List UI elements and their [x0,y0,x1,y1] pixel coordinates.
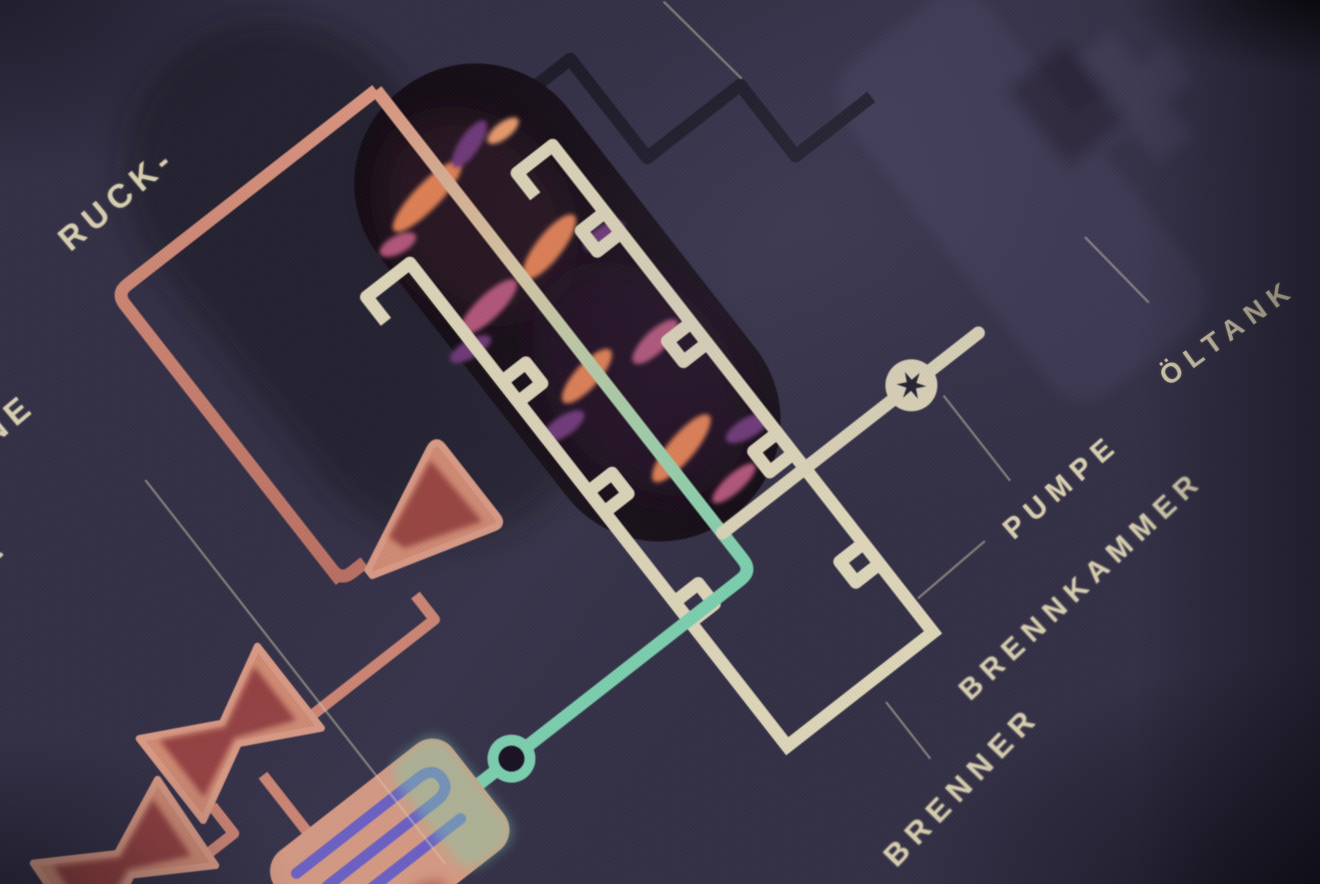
burner-coil-block [260,728,526,884]
nozzle-feed-corner [332,551,364,581]
leader-brennkammer [916,541,988,598]
leader-pumpe [944,396,1010,481]
leader-tank-vent [664,0,742,87]
photo-of-printed-diagram: ÖLTANK PUMPE BRENNKAMMER BRENNER RUCK- N… [0,0,1320,884]
system-diagram [0,0,1320,884]
leader-brenner [886,702,930,759]
